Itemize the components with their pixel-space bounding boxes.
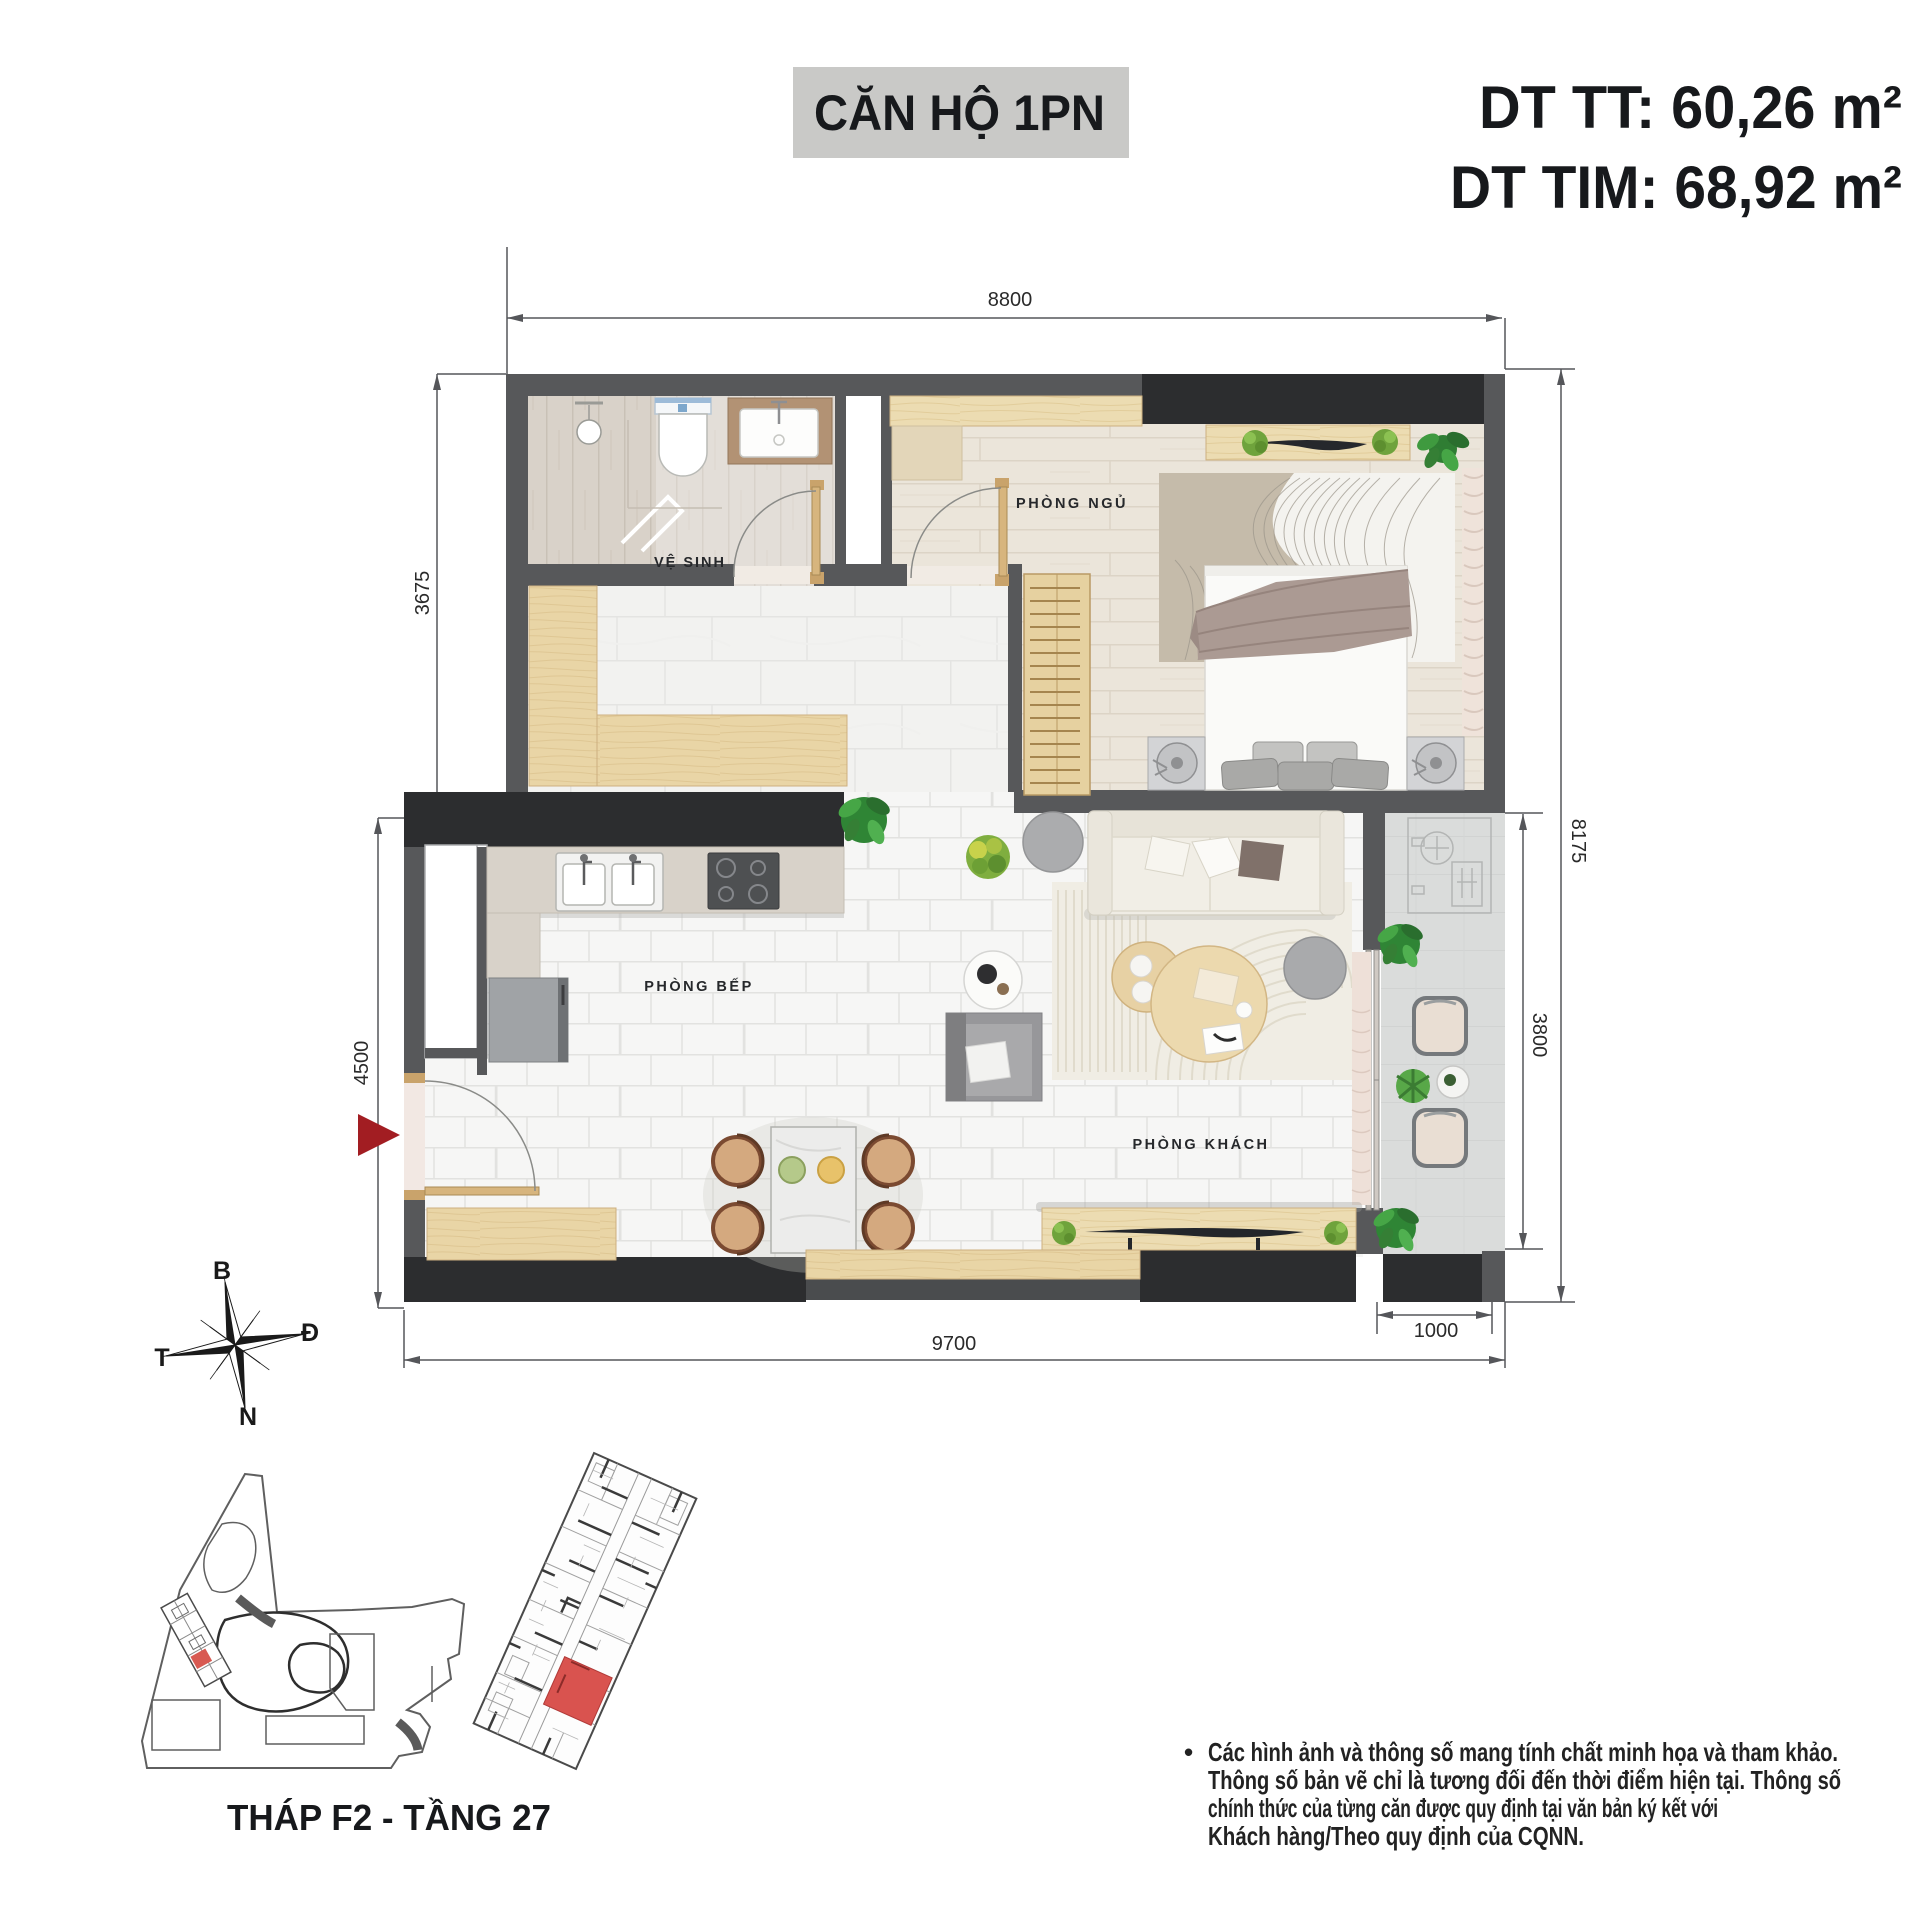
svg-text:PHÒNG KHÁCH: PHÒNG KHÁCH <box>1132 1135 1269 1153</box>
svg-text:B: B <box>213 1257 231 1285</box>
svg-text:3800: 3800 <box>1528 1013 1550 1058</box>
svg-text:Đ: Đ <box>301 1319 319 1347</box>
svg-text:8800: 8800 <box>988 289 1033 311</box>
svg-text:Các hình ảnh và thông số mang: Các hình ảnh và thông số mang tính chất … <box>1208 1737 1838 1767</box>
svg-text:Thông số bản vẽ chỉ là tương đ: Thông số bản vẽ chỉ là tương đối đến thờ… <box>1208 1765 1841 1795</box>
svg-text:1000: 1000 <box>1414 1320 1459 1342</box>
svg-text:4500: 4500 <box>351 1041 373 1086</box>
svg-text:Khách hàng/Theo quy định của C: Khách hàng/Theo quy định của CQNN. <box>1208 1821 1584 1851</box>
svg-text:PHÒNG NGỦ: PHÒNG NGỦ <box>1016 494 1128 512</box>
svg-text:DT TT: 60,26 m²: DT TT: 60,26 m² <box>1479 74 1902 141</box>
svg-text:3675: 3675 <box>412 571 434 616</box>
svg-text:chính thức của từng căn được q: chính thức của từng căn được quy định tạ… <box>1208 1793 1718 1823</box>
svg-text:9700: 9700 <box>932 1333 977 1355</box>
svg-text:8175: 8175 <box>1567 819 1589 864</box>
svg-text:THÁP F2 - TẦNG 27: THÁP F2 - TẦNG 27 <box>227 1797 551 1838</box>
svg-text:VỆ SINH: VỆ SINH <box>654 553 726 571</box>
svg-text:DT TIM: 68,92 m²: DT TIM: 68,92 m² <box>1450 154 1902 221</box>
svg-text:PHÒNG BẾP: PHÒNG BẾP <box>644 977 754 995</box>
svg-text:N: N <box>239 1403 257 1431</box>
svg-text:•: • <box>1184 1737 1193 1767</box>
svg-text:T: T <box>154 1344 169 1372</box>
svg-text:CĂN HỘ 1PN: CĂN HỘ 1PN <box>814 84 1105 141</box>
